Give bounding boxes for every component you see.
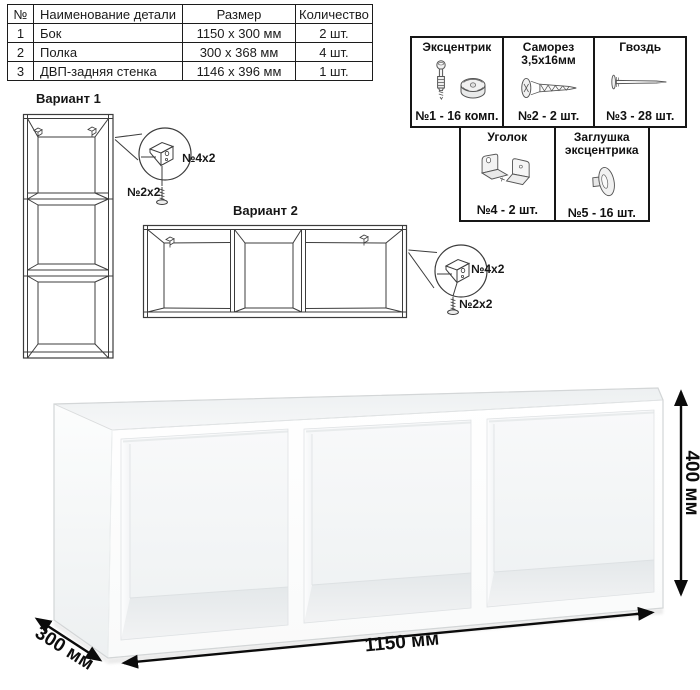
hardware-box-bottom-row: Уголок №4 - 2 шт. Заглушка эксцен [459, 126, 650, 222]
hardware-item-name: Саморез 3,5х16мм [504, 38, 594, 68]
variant2-bracket-label: №4х2 [471, 262, 504, 276]
variant1-drawing [24, 115, 114, 359]
screw-icon [509, 68, 589, 108]
hardware-item-name: Гвоздь [617, 38, 663, 54]
variant1-title: Вариант 1 [36, 91, 101, 106]
part-name: Полка [34, 43, 183, 62]
cam-cover-icon [562, 158, 642, 206]
variant1-bracket-label: №4х2 [182, 151, 215, 165]
hardware-item-count: №1 - 16 комп. [415, 109, 498, 126]
corner-bracket-icon [467, 150, 547, 198]
col-number: № [8, 5, 34, 24]
variant2-title: Вариант 2 [233, 203, 298, 218]
part-name: ДВП-задняя стенка [34, 62, 183, 81]
hardware-item-eccentric: Эксцентрик [410, 36, 504, 128]
nail-icon [600, 62, 680, 102]
hardware-item-nail: Гвоздь №3 - 28 шт. [593, 36, 687, 128]
variant1-screw-label: №2х2 [127, 185, 160, 199]
hardware-item-cam-cover: Заглушка эксцентрика №5 - 16 шт. [554, 126, 651, 222]
hardware-item-name: Заглушка эксцентрика [556, 128, 649, 158]
height-dimension-label: 400 мм [680, 450, 700, 515]
part-number: 1 [8, 24, 34, 43]
part-size: 300 х 368 мм [183, 43, 296, 62]
variant2-drawing [144, 226, 407, 318]
hardware-box-top-row: Эксцентрик [410, 36, 687, 128]
table-row: 1 Бок 1150 х 300 мм 2 шт. [8, 24, 373, 43]
part-qty: 4 шт. [296, 43, 373, 62]
hardware-item-name: Эксцентрик [420, 38, 493, 54]
hardware-item-count: №4 - 2 шт. [477, 203, 538, 220]
part-qty: 1 шт. [296, 62, 373, 81]
col-size: Размер [183, 5, 296, 24]
variant2-screw-label: №2х2 [459, 297, 492, 311]
part-number: 2 [8, 43, 34, 62]
table-row: 2 Полка 300 х 368 мм 4 шт. [8, 43, 373, 62]
eccentric-icon [417, 59, 497, 105]
part-qty: 2 шт. [296, 24, 373, 43]
parts-table: № Наименование детали Размер Количество … [7, 4, 373, 81]
hardware-item-count: №3 - 28 шт. [606, 109, 674, 126]
part-size: 1150 х 300 мм [183, 24, 296, 43]
shelf-render [54, 388, 663, 664]
part-name: Бок [34, 24, 183, 43]
hardware-item-count: №2 - 2 шт. [518, 109, 579, 126]
part-size: 1146 х 396 мм [183, 62, 296, 81]
col-quantity: Количество [296, 5, 373, 24]
table-row: 3 ДВП-задняя стенка 1146 х 396 мм 1 шт. [8, 62, 373, 81]
hardware-item-screw: Саморез 3,5х16мм №2 - 2 шт. [502, 36, 596, 128]
assembly-instruction-page: № Наименование детали Размер Количество … [0, 0, 700, 690]
parts-table-header-row: № Наименование детали Размер Количество [8, 5, 373, 24]
col-part-name: Наименование детали [34, 5, 183, 24]
part-number: 3 [8, 62, 34, 81]
hardware-item-corner-bracket: Уголок №4 - 2 шт. [459, 126, 556, 222]
hardware-item-count: №5 - 16 шт. [568, 206, 636, 223]
hardware-item-name: Уголок [485, 128, 529, 144]
